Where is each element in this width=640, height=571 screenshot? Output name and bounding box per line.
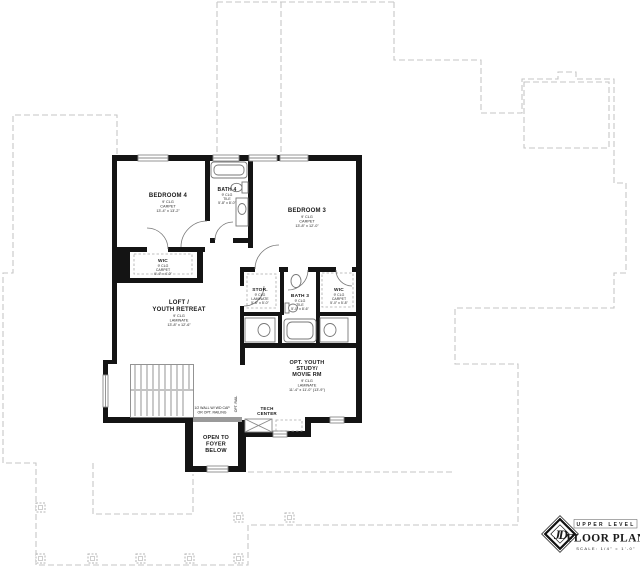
room-label-wic-right: WIC 9' CLG CARPET 5'-0" x 5'-8" — [330, 287, 348, 305]
scale-label: SCALE: 1/4" = 1'-0" — [576, 546, 636, 551]
door-arc-bedroom4 — [181, 221, 207, 247]
floor-plan-page: BEDROOM 4 9' CLG CARPET 13'-4" x 13'-2" … — [0, 0, 640, 571]
room-label-open-to-foyer: OPEN TO FOYER BELOW — [203, 435, 230, 454]
svg-text:13'-8" x 12'-0": 13'-8" x 12'-0" — [295, 224, 319, 228]
title-block: JD UPPER LEVEL FLOOR PLAN SCALE: 1/4" = … — [542, 516, 640, 553]
svg-text:5'-0" x 8'-6": 5'-0" x 8'-6" — [291, 307, 309, 311]
svg-text:MOVIE RM: MOVIE RM — [292, 372, 322, 378]
svg-text:9' CLG: 9' CLG — [301, 215, 313, 219]
svg-text:OPEN TO: OPEN TO — [203, 435, 230, 441]
svg-text:9' CLG: 9' CLG — [301, 379, 313, 383]
door-arc-bedroom3 — [255, 245, 279, 269]
room-label-tech-center: TECH CENTER — [257, 406, 277, 416]
svg-text:6'-4" x 4'-0": 6'-4" x 4'-0" — [154, 272, 172, 276]
room-label-bedroom-3: BEDROOM 3 9' CLG CARPET 13'-8" x 12'-0" — [288, 208, 327, 228]
sink-icon-bath3 — [291, 275, 301, 288]
half-wall-note: 1/2 WALL W/ WD CAP OR OPT. RAILING — [194, 406, 230, 415]
tech-desk — [276, 420, 302, 431]
svg-text:YOUTH RETREAT: YOUTH RETREAT — [152, 307, 205, 313]
sink-vanity-icon-left — [245, 318, 275, 342]
svg-text:1/2 WALL W/ WD CAP: 1/2 WALL W/ WD CAP — [194, 406, 230, 410]
svg-text:FOYER: FOYER — [206, 442, 226, 448]
half-wall — [193, 417, 242, 422]
svg-text:OR OPT. RAILING: OR OPT. RAILING — [198, 411, 227, 415]
door-arc-wic-left — [147, 228, 168, 249]
door-arc-wic-right — [336, 270, 352, 286]
svg-text:CARPET: CARPET — [160, 205, 176, 209]
svg-text:LAMINATE: LAMINATE — [170, 319, 189, 323]
svg-text:LOFT /: LOFT / — [169, 300, 189, 306]
room-label-wic-left: WIC 9' CLG CARPET 6'-4" x 4'-0" — [154, 258, 172, 276]
svg-text:5'-8" x 8'-0": 5'-8" x 8'-0" — [218, 201, 236, 205]
svg-text:LAMINATE: LAMINATE — [298, 384, 317, 388]
sink-vanity-icon-bath4 — [236, 198, 248, 226]
bathtub-icon-bath3 — [284, 319, 316, 342]
svg-text:9' CLG: 9' CLG — [162, 200, 174, 204]
bathtub-icon-bath4 — [211, 162, 247, 178]
svg-text:13'-8" x 12'-6": 13'-8" x 12'-6" — [167, 323, 191, 327]
room-label-bath-4: BATH 4 9' CLG TILE 5'-8" x 8'-0" — [218, 187, 237, 205]
svg-text:5'-8" x 5'-0": 5'-8" x 5'-0" — [251, 301, 269, 305]
outline-porch-lines — [93, 463, 455, 514]
svg-text:BELOW: BELOW — [205, 448, 227, 454]
sink-vanity-icon-right — [320, 318, 348, 342]
floor-plan-drawing: BEDROOM 4 9' CLG CARPET 13'-4" x 13'-2" … — [0, 0, 640, 571]
svg-text:11'-4" x 11'-0" (13'-9"): 11'-4" x 11'-0" (13'-9") — [289, 388, 326, 392]
room-label-study: OPT. YOUTH STUDY/ MOVIE RM 9' CLG LAMINA… — [289, 360, 326, 392]
svg-text:CARPET: CARPET — [299, 220, 315, 224]
stairs-icon — [131, 365, 194, 418]
svg-text:BEDROOM 3: BEDROOM 3 — [288, 208, 327, 214]
attic-access-icon — [245, 419, 272, 432]
svg-text:CENTER: CENTER — [257, 411, 277, 416]
room-label-stor: STOR. 9' CLG LAMINATE 5'-8" x 5'-0" — [251, 287, 269, 305]
svg-text:5'-0" x 5'-8": 5'-0" x 5'-8" — [330, 301, 348, 305]
porch-posts — [36, 503, 294, 563]
outline-main-path — [3, 2, 626, 565]
room-label-loft: LOFT / YOUTH RETREAT 9' CLG LAMINATE 13'… — [152, 300, 205, 327]
level-label: UPPER LEVEL — [577, 522, 636, 528]
room-label-bedroom-4: BEDROOM 4 9' CLG CARPET 13'-4" x 13'-2" — [149, 193, 188, 213]
opt-rail-note: OPT. RAIL — [234, 396, 238, 413]
svg-text:13'-4" x 13'-2": 13'-4" x 13'-2" — [156, 209, 180, 213]
svg-text:BEDROOM 4: BEDROOM 4 — [149, 193, 188, 199]
outline-top-roof — [217, 2, 394, 153]
outline-right-bumpout — [524, 82, 609, 148]
svg-text:9' CLG: 9' CLG — [173, 314, 185, 318]
lower-level-outline — [3, 2, 626, 565]
plan-title: FLOOR PLAN — [566, 533, 640, 545]
door-arc-bath4 — [215, 222, 233, 240]
room-label-bath-3: BATH 3 9' CLG TILE 5'-0" x 8'-6" — [291, 293, 310, 311]
